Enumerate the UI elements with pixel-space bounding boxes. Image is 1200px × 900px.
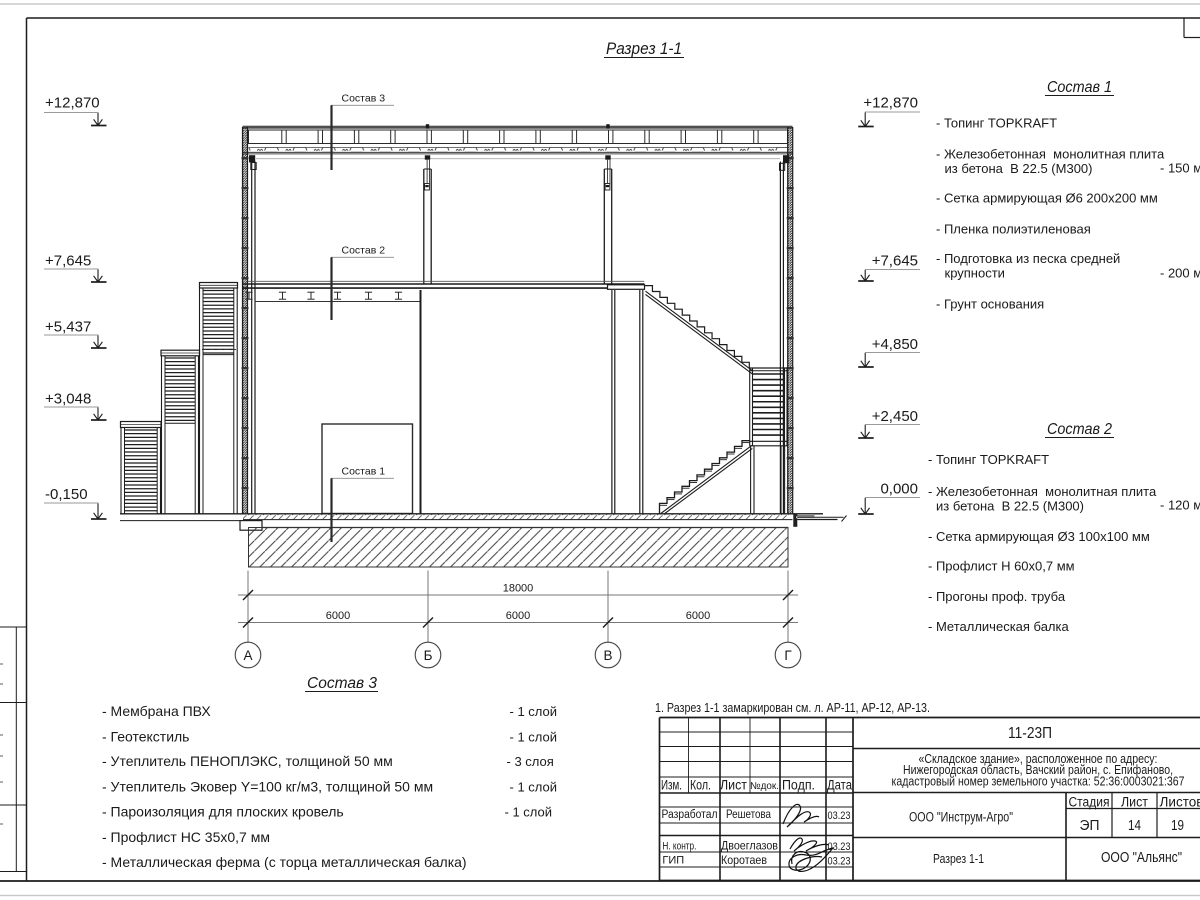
svg-text:Разрез 1-1: Разрез 1-1 <box>933 851 984 866</box>
svg-text:18000: 18000 <box>503 583 534 595</box>
svg-text:Состав 1: Состав 1 <box>342 466 386 478</box>
svg-text:0,000: 0,000 <box>880 481 918 498</box>
svg-text:Лист: Лист <box>1121 795 1148 810</box>
svg-text:Г: Г <box>784 648 792 663</box>
svg-text:- Сетка армирующая Ø3 100х100: - Сетка армирующая Ø3 100х100 мм <box>928 529 1150 544</box>
svg-text:Лист: Лист <box>720 778 747 793</box>
svg-text:- Сетка армирующая Ø6 200х200: - Сетка армирующая Ø6 200х200 мм <box>936 191 1158 206</box>
svg-text:Б: Б <box>424 648 433 663</box>
svg-text:- Железобетонная монолитная п: - Железобетонная монолитная плита <box>936 147 1165 162</box>
svg-text:Подп.: Подп. <box>782 778 815 793</box>
svg-text:+5,437: +5,437 <box>45 319 91 336</box>
svg-text:А: А <box>243 648 252 663</box>
svg-text:Н. контр.: Н. контр. <box>662 841 696 853</box>
svg-text:6000: 6000 <box>686 610 710 622</box>
svg-text:Стадия: Стадия <box>1069 795 1110 810</box>
svg-text:Кол.: Кол. <box>690 778 711 793</box>
svg-text:- Прогоны проф. труба: - Прогоны проф. труба <box>928 589 1066 604</box>
svg-text:14: 14 <box>1128 818 1141 834</box>
svg-text:+12,870: +12,870 <box>45 95 100 112</box>
svg-text:ООО "Альянс": ООО "Альянс" <box>1101 849 1182 866</box>
svg-text:Изм.: Изм. <box>661 778 682 793</box>
svg-text:- Утеплитель Эковер Y=100 кг/м: - Утеплитель Эковер Y=100 кг/м3, толщино… <box>102 779 433 795</box>
svg-text:Коротаев: Коротаев <box>721 853 767 867</box>
svg-text:+12,870: +12,870 <box>863 95 918 112</box>
svg-text:- Мембрана ПВХ: - Мембрана ПВХ <box>102 703 211 719</box>
svg-text:Состав 3: Состав 3 <box>307 675 377 692</box>
svg-text:- Пленка полиэтиленовая: - Пленка полиэтиленовая <box>936 222 1091 237</box>
svg-text:+4,850: +4,850 <box>872 336 918 353</box>
svg-text:- Металлическая ферма (с торца: - Металлическая ферма (с торца металличе… <box>102 854 467 870</box>
svg-text:- Железобетонная монолитная п: - Железобетонная монолитная плита <box>928 484 1157 499</box>
svg-text:крупности: крупности <box>945 266 1005 281</box>
svg-text:Разработал: Разработал <box>662 809 718 821</box>
svg-text:- 120 мм: - 120 мм <box>1160 498 1200 513</box>
svg-text:№док.: №док. <box>750 781 779 792</box>
svg-text:1. Разрез 1-1 замаркирован см.: 1. Разрез 1-1 замаркирован см. л. АР-11,… <box>655 700 930 715</box>
svg-text:Дата: Дата <box>827 778 852 793</box>
svg-text:11-23П: 11-23П <box>1008 725 1052 742</box>
svg-text:Решетова: Решетова <box>726 807 771 821</box>
svg-text:- Грунт основания: - Грунт основания <box>936 297 1044 312</box>
svg-text:Состав 2: Состав 2 <box>1047 421 1112 438</box>
svg-text:Разрез 1-1: Разрез 1-1 <box>606 40 682 58</box>
svg-text:6000: 6000 <box>506 610 530 622</box>
svg-text:ГИП: ГИП <box>662 855 684 867</box>
svg-text:03.23: 03.23 <box>828 856 851 868</box>
svg-text:- 1 слой: - 1 слой <box>510 730 558 745</box>
svg-text:- Геотекстиль: - Геотекстиль <box>102 729 189 745</box>
svg-text:Листов: Листов <box>1160 795 1200 810</box>
svg-text:- Пароизоляция для плоских кро: - Пароизоляция для плоских кровель <box>102 804 344 820</box>
svg-text:Состав 1: Состав 1 <box>1047 79 1112 96</box>
svg-text:- Топинг TOPKRAFT: - Топинг TOPKRAFT <box>936 116 1057 131</box>
svg-text:+7,645: +7,645 <box>872 253 918 270</box>
svg-text:- 1 слой: - 1 слой <box>510 780 558 795</box>
svg-text:+7,645: +7,645 <box>45 253 91 270</box>
svg-text:+2,450: +2,450 <box>872 408 918 425</box>
svg-text:- Профлист НС 35х0,7 мм: - Профлист НС 35х0,7 мм <box>102 829 270 845</box>
svg-text:В: В <box>603 648 612 663</box>
svg-text:- Профлист Н 60х0,7 мм: - Профлист Н 60х0,7 мм <box>928 559 1075 574</box>
svg-text:- Подготовка из песка средней: - Подготовка из песка средней <box>936 251 1120 266</box>
svg-text:+3,048: +3,048 <box>45 391 91 408</box>
svg-text:из бетона В 22.5 (М300): из бетона В 22.5 (М300) <box>945 161 1093 176</box>
svg-text:- 200 мм: - 200 мм <box>1160 266 1200 281</box>
svg-text:Двоеглазов: Двоеглазов <box>721 839 778 853</box>
svg-text:- 1 слой: - 1 слой <box>505 805 553 820</box>
svg-text:- 3 слоя: - 3 слоя <box>507 754 554 769</box>
svg-text:- Металлическая балка: - Металлическая балка <box>928 619 1069 634</box>
svg-text:- 1 слой: - 1 слой <box>510 704 558 719</box>
svg-text:- Утеплитель ПЕНОПЛЭКС, толщин: - Утеплитель ПЕНОПЛЭКС, толщиной 50 мм <box>102 753 393 769</box>
svg-text:19: 19 <box>1171 818 1184 834</box>
svg-text:- Топинг TOPKRAFT: - Топинг TOPKRAFT <box>928 452 1049 467</box>
svg-text:6000: 6000 <box>326 610 350 622</box>
svg-text:-0,150: -0,150 <box>45 486 88 503</box>
svg-text:ЭП: ЭП <box>1080 818 1100 834</box>
svg-text:Состав 2: Состав 2 <box>342 245 386 257</box>
svg-text:03.23: 03.23 <box>828 810 851 822</box>
svg-text:ООО "Инструм-Агро": ООО "Инструм-Агро" <box>909 810 1013 825</box>
svg-text:Состав 3: Состав 3 <box>342 93 386 105</box>
svg-text:- 150 мм: - 150 мм <box>1160 161 1200 176</box>
svg-text:из бетона В 22.5 (М300): из бетона В 22.5 (М300) <box>936 499 1084 514</box>
svg-text:кадастровый номер земельного у: кадастровый номер земельного участка: 52… <box>892 774 1185 788</box>
